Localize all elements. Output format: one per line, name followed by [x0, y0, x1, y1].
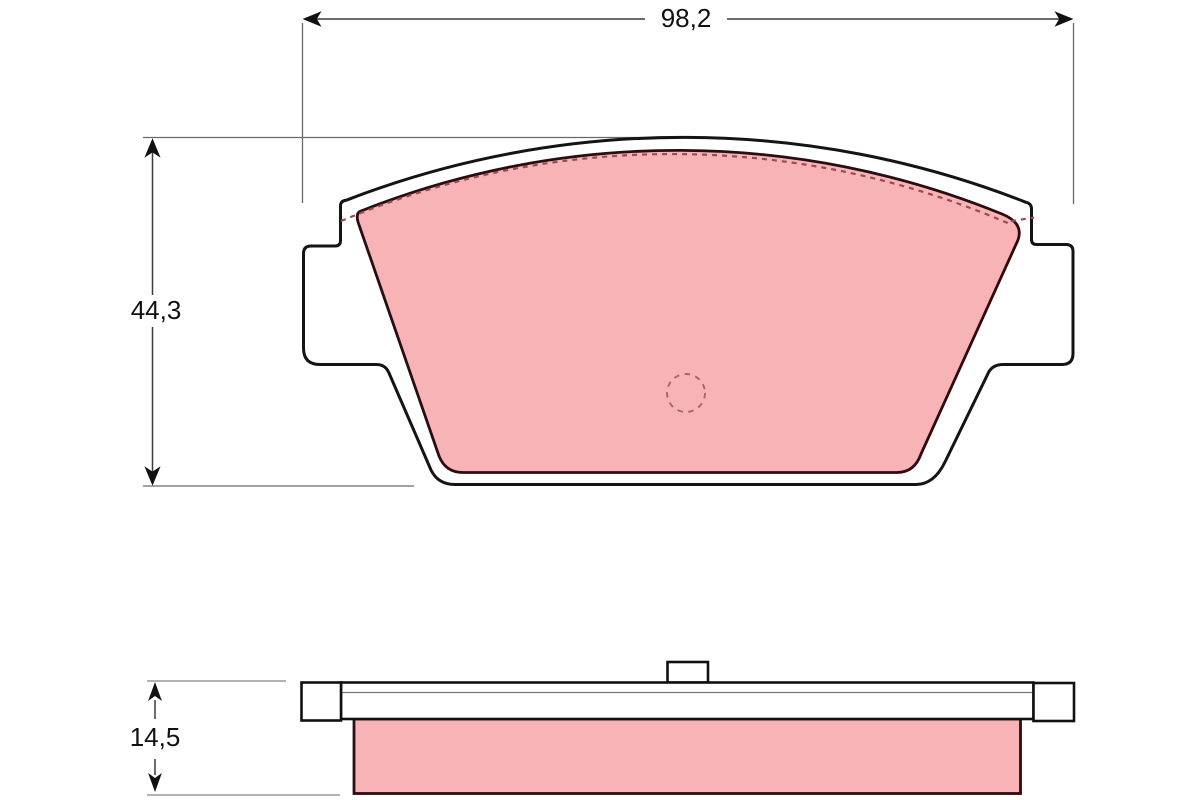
svg-text:14,5: 14,5 — [130, 722, 181, 752]
svg-text:44,3: 44,3 — [131, 295, 182, 325]
svg-text:98,2: 98,2 — [661, 3, 712, 33]
